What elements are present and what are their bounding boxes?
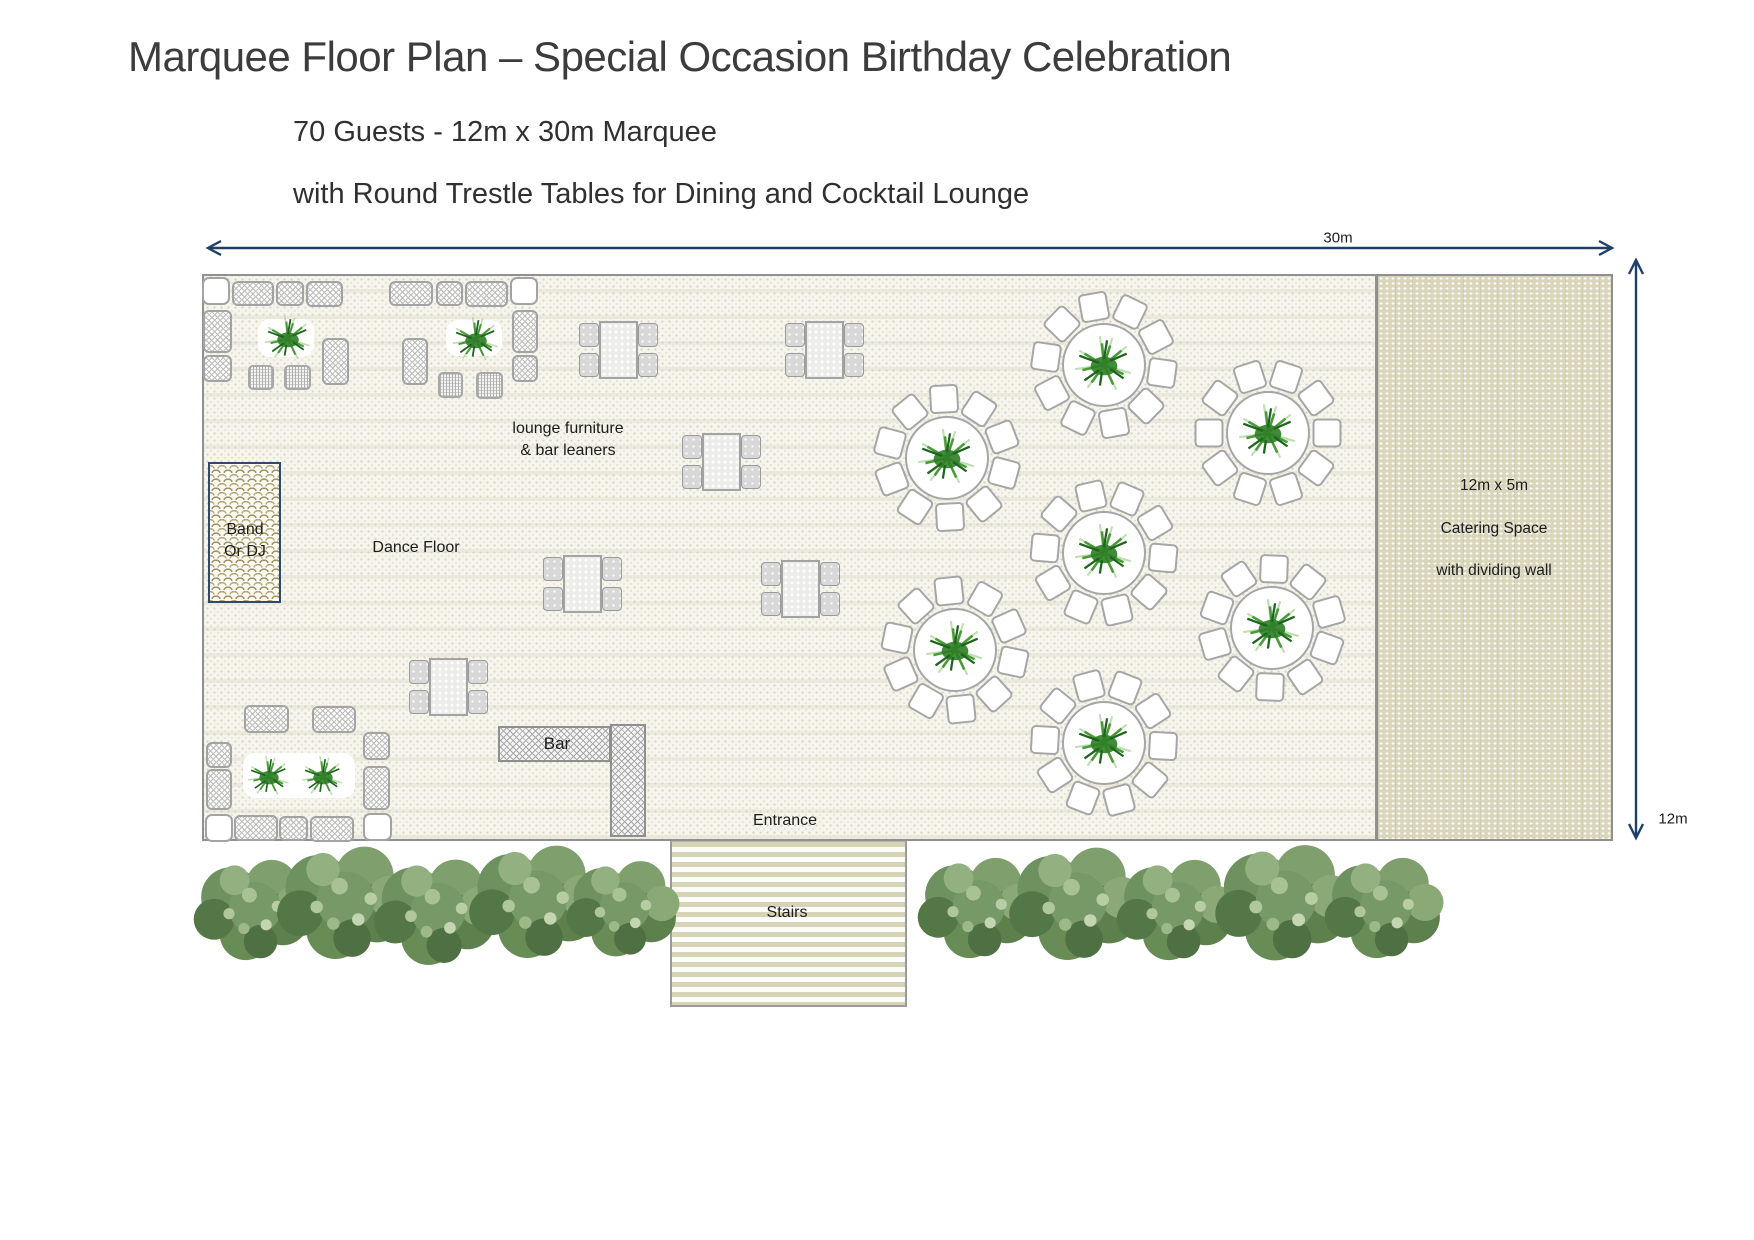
bar-leaner-table bbox=[599, 321, 638, 379]
lounge-module-table bbox=[284, 365, 311, 390]
bar-leaner-chair bbox=[741, 435, 761, 459]
lounge-module-corner bbox=[202, 277, 230, 305]
band-dj-label: Band Or DJ bbox=[224, 519, 266, 563]
dining-chair bbox=[1029, 340, 1062, 373]
dining-chair bbox=[945, 693, 977, 725]
dining-chair bbox=[1231, 359, 1268, 396]
table-centerpiece-icon bbox=[911, 422, 983, 494]
dance-floor-label: Dance Floor bbox=[372, 539, 459, 557]
dining-chair bbox=[1077, 290, 1111, 324]
tree-icon bbox=[1321, 843, 1451, 973]
entrance-label: Entrance bbox=[753, 812, 817, 830]
dining-chair bbox=[1097, 406, 1131, 440]
dining-chair bbox=[1073, 478, 1108, 513]
bar-leaner-chair bbox=[543, 587, 563, 611]
catering-wall-label: with dividing wall bbox=[1436, 562, 1551, 580]
dining-chair bbox=[1231, 471, 1268, 508]
dining-chair bbox=[1147, 542, 1178, 573]
bar-leaner-table bbox=[781, 560, 820, 618]
stairs-area bbox=[670, 841, 907, 1007]
bar-counter-vertical bbox=[610, 724, 646, 837]
bar-leaner-chair bbox=[761, 592, 781, 616]
bar-leaner-chair bbox=[409, 690, 429, 714]
dividing-wall bbox=[1375, 274, 1378, 841]
bar-leaner-chair bbox=[468, 660, 488, 684]
plant-icon bbox=[259, 310, 317, 368]
lounge-module-sofa bbox=[363, 766, 390, 810]
bar-leaner-chair bbox=[785, 353, 805, 377]
lounge-module-sofa bbox=[402, 338, 428, 385]
lounge-module-sofa bbox=[512, 355, 538, 382]
catering-size-label: 12m x 5m bbox=[1460, 477, 1528, 495]
dining-chair bbox=[1064, 779, 1101, 816]
dining-chair bbox=[1146, 357, 1179, 390]
bar-leaner-chair bbox=[820, 592, 840, 616]
height-dimension-arrow bbox=[1625, 256, 1647, 842]
lounge-module-corner bbox=[510, 277, 538, 305]
lounge-module-sofa bbox=[206, 742, 232, 768]
round-table-group bbox=[1199, 555, 1345, 701]
bar-leaner-chair bbox=[682, 435, 702, 459]
catering-area bbox=[1376, 274, 1613, 841]
bar-leaner-chair bbox=[579, 353, 599, 377]
lounge-module-sofa bbox=[203, 310, 232, 353]
bar-leaner-table bbox=[702, 433, 741, 491]
lounge-module-sofa bbox=[389, 281, 433, 306]
dining-chair bbox=[1259, 554, 1289, 584]
lounge-module-sofa bbox=[322, 338, 349, 385]
bar-leaner-chair bbox=[785, 323, 805, 347]
dining-chair bbox=[1197, 626, 1233, 662]
lounge-module-sofa bbox=[512, 310, 538, 353]
dining-chair bbox=[986, 456, 1022, 492]
bar-leaner-table bbox=[805, 321, 844, 379]
bar-leaner-chair bbox=[602, 557, 622, 581]
dining-chair bbox=[1100, 593, 1135, 628]
round-table-group bbox=[882, 577, 1028, 723]
bar-leaner-chair bbox=[761, 562, 781, 586]
bar-leaner-table bbox=[563, 555, 602, 613]
width-dimension-arrow bbox=[205, 239, 1615, 257]
bar-leaner-chair bbox=[682, 465, 702, 489]
bar-leaner-chair bbox=[638, 353, 658, 377]
lounge-module-sofa bbox=[232, 281, 274, 306]
lounge-module-sofa bbox=[312, 706, 356, 733]
bar-label: Bar bbox=[544, 734, 570, 754]
bar-leaner-chair bbox=[543, 557, 563, 581]
plant-icon bbox=[297, 751, 349, 803]
bar-leaner-chair bbox=[638, 323, 658, 347]
bar-leaner-set bbox=[682, 433, 761, 491]
bar-leaner-chair bbox=[602, 587, 622, 611]
lounge-module-sofa bbox=[363, 732, 390, 760]
lounge-module-sofa bbox=[206, 769, 232, 810]
bar-leaner-set bbox=[543, 555, 622, 613]
dining-chair bbox=[1309, 630, 1346, 667]
lounge-module-sofa bbox=[244, 705, 289, 733]
lounge-module-sofa bbox=[306, 281, 343, 307]
lounge-module-sofa bbox=[203, 355, 232, 382]
lounge-module-corner bbox=[205, 814, 233, 842]
bar-leaner-chair bbox=[468, 690, 488, 714]
bar-leaner-set bbox=[409, 658, 488, 716]
dining-chair bbox=[1268, 471, 1305, 508]
lounge-module-sofa bbox=[465, 281, 508, 307]
lounge-module-table bbox=[438, 372, 463, 398]
table-centerpiece-icon bbox=[1232, 397, 1304, 469]
round-table-group bbox=[1031, 480, 1177, 626]
dining-chair bbox=[1313, 419, 1342, 448]
dining-chair bbox=[1268, 359, 1305, 396]
floor-plan: Band Or DJ Dance Floor lounge furniture … bbox=[0, 0, 1754, 1240]
table-centerpiece-icon bbox=[1068, 517, 1140, 589]
round-table-group bbox=[1031, 670, 1177, 816]
dining-chair bbox=[880, 621, 914, 655]
bar-leaner-chair bbox=[820, 562, 840, 586]
dining-chair bbox=[1102, 782, 1138, 818]
bar-leaner-chair bbox=[579, 323, 599, 347]
bar-leaner-set bbox=[785, 321, 864, 379]
bar-leaner-chair bbox=[844, 353, 864, 377]
dining-chair bbox=[996, 645, 1030, 679]
bar-leaner-chair bbox=[741, 465, 761, 489]
bar-leaner-table bbox=[429, 658, 468, 716]
lounge-module-table bbox=[248, 365, 274, 390]
table-centerpiece-icon bbox=[1068, 329, 1140, 401]
bar-leaner-set bbox=[761, 560, 840, 618]
tree-icon bbox=[563, 847, 687, 971]
dimension-label-12m: 12m bbox=[1658, 811, 1687, 828]
plant-icon bbox=[243, 751, 295, 803]
dining-chair bbox=[1311, 594, 1347, 630]
dining-chair bbox=[935, 502, 965, 532]
catering-space-label: Catering Space bbox=[1441, 520, 1548, 538]
dining-chair bbox=[1195, 419, 1224, 448]
dining-chair bbox=[983, 418, 1020, 455]
bar-leaner-chair bbox=[409, 660, 429, 684]
table-centerpiece-icon bbox=[919, 614, 991, 686]
round-table-group bbox=[874, 385, 1020, 531]
bar-leaner-set bbox=[579, 321, 658, 379]
table-centerpiece-icon bbox=[1068, 707, 1140, 779]
dimension-label-30m: 30m bbox=[1323, 230, 1352, 247]
plant-icon bbox=[447, 311, 505, 369]
lounge-module-table bbox=[476, 372, 503, 399]
dining-chair bbox=[929, 384, 959, 414]
round-table-group bbox=[1031, 292, 1177, 438]
dining-chair bbox=[872, 425, 908, 461]
lounge-module-sofa bbox=[436, 281, 463, 306]
lounge-furniture-label: lounge furniture & bar leaners bbox=[512, 418, 623, 462]
dining-chair bbox=[1148, 731, 1178, 761]
lounge-module-sofa bbox=[276, 281, 304, 306]
dining-chair bbox=[1255, 672, 1285, 702]
stairs-label: Stairs bbox=[767, 904, 808, 922]
dining-chair bbox=[933, 575, 965, 607]
lounge-module-sofa bbox=[234, 815, 278, 841]
round-table-group bbox=[1195, 360, 1341, 506]
dining-chair bbox=[1030, 532, 1061, 563]
bar-leaner-chair bbox=[844, 323, 864, 347]
table-centerpiece-icon bbox=[1236, 592, 1308, 664]
dining-chair bbox=[1030, 725, 1060, 755]
dining-chair bbox=[1071, 668, 1107, 704]
